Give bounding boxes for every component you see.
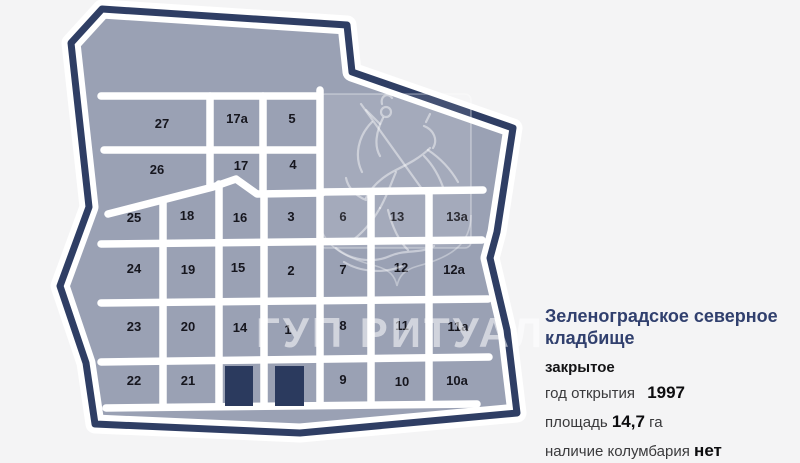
section-label-20: 20 bbox=[181, 319, 195, 334]
section-label-5: 5 bbox=[288, 111, 295, 126]
fact-value: нет bbox=[694, 441, 722, 460]
section-label-26: 26 bbox=[150, 162, 164, 177]
page: { "map": { "watermark_text": "ГУП РИТУАЛ… bbox=[0, 0, 800, 450]
section-label-12а: 12а bbox=[443, 262, 465, 277]
building-block bbox=[275, 366, 304, 406]
fact-suffix: га bbox=[649, 414, 662, 431]
section-label-3: 3 bbox=[287, 209, 294, 224]
fact-label: наличие колумбария bbox=[545, 443, 690, 460]
fact-value: 14,7 bbox=[612, 412, 645, 431]
section-label-17а: 17а bbox=[226, 111, 248, 126]
section-label-17: 17 bbox=[234, 158, 248, 173]
fact-label: год открытия bbox=[545, 385, 635, 402]
section-label-9: 9 bbox=[339, 372, 346, 387]
section-label-22: 22 bbox=[127, 373, 141, 388]
section-label-25: 25 bbox=[127, 210, 141, 225]
section-label-18: 18 bbox=[180, 208, 194, 223]
fact-opening-year: год открытия 1997 bbox=[545, 382, 795, 405]
cemetery-title: Зеленоградское северное кладбище bbox=[545, 306, 795, 350]
fact-value: 1997 bbox=[647, 383, 685, 402]
fact-area: площадь 14,7 га bbox=[545, 411, 795, 434]
section-label-10: 10 bbox=[395, 374, 409, 389]
section-label-27: 27 bbox=[155, 116, 169, 131]
section-label-16: 16 bbox=[233, 210, 247, 225]
section-label-2: 2 bbox=[287, 263, 294, 278]
fact-label: площадь bbox=[545, 414, 608, 431]
section-label-15: 15 bbox=[231, 260, 245, 275]
building-block bbox=[225, 366, 253, 406]
section-label-24: 24 bbox=[127, 261, 142, 276]
cemetery-status: закрытое bbox=[545, 359, 795, 376]
fact-columbarium: наличие колумбария нет bbox=[545, 440, 795, 463]
watermark-text: ГУП РИТУАЛ bbox=[256, 309, 545, 356]
section-label-7: 7 bbox=[339, 262, 346, 277]
section-label-23: 23 bbox=[127, 319, 141, 334]
section-label-4: 4 bbox=[289, 157, 297, 172]
section-label-14: 14 bbox=[233, 320, 248, 335]
section-label-19: 19 bbox=[181, 262, 195, 277]
cemetery-info-panel: Зеленоградское северное кладбище закрыто… bbox=[545, 306, 795, 463]
section-label-21: 21 bbox=[181, 373, 195, 388]
section-label-10а: 10а bbox=[446, 373, 468, 388]
